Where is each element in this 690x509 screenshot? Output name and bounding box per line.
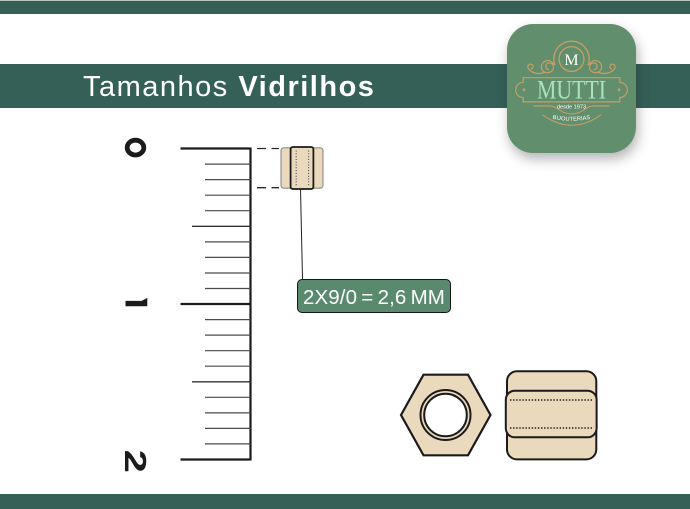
svg-text:desde 1973: desde 1973 [556, 105, 585, 111]
svg-text:BIJOUTERIAS: BIJOUTERIAS [552, 115, 591, 123]
svg-text:M: M [564, 52, 578, 69]
svg-text:2: 2 [118, 450, 153, 473]
svg-text:MUTTI: MUTTI [537, 75, 606, 104]
